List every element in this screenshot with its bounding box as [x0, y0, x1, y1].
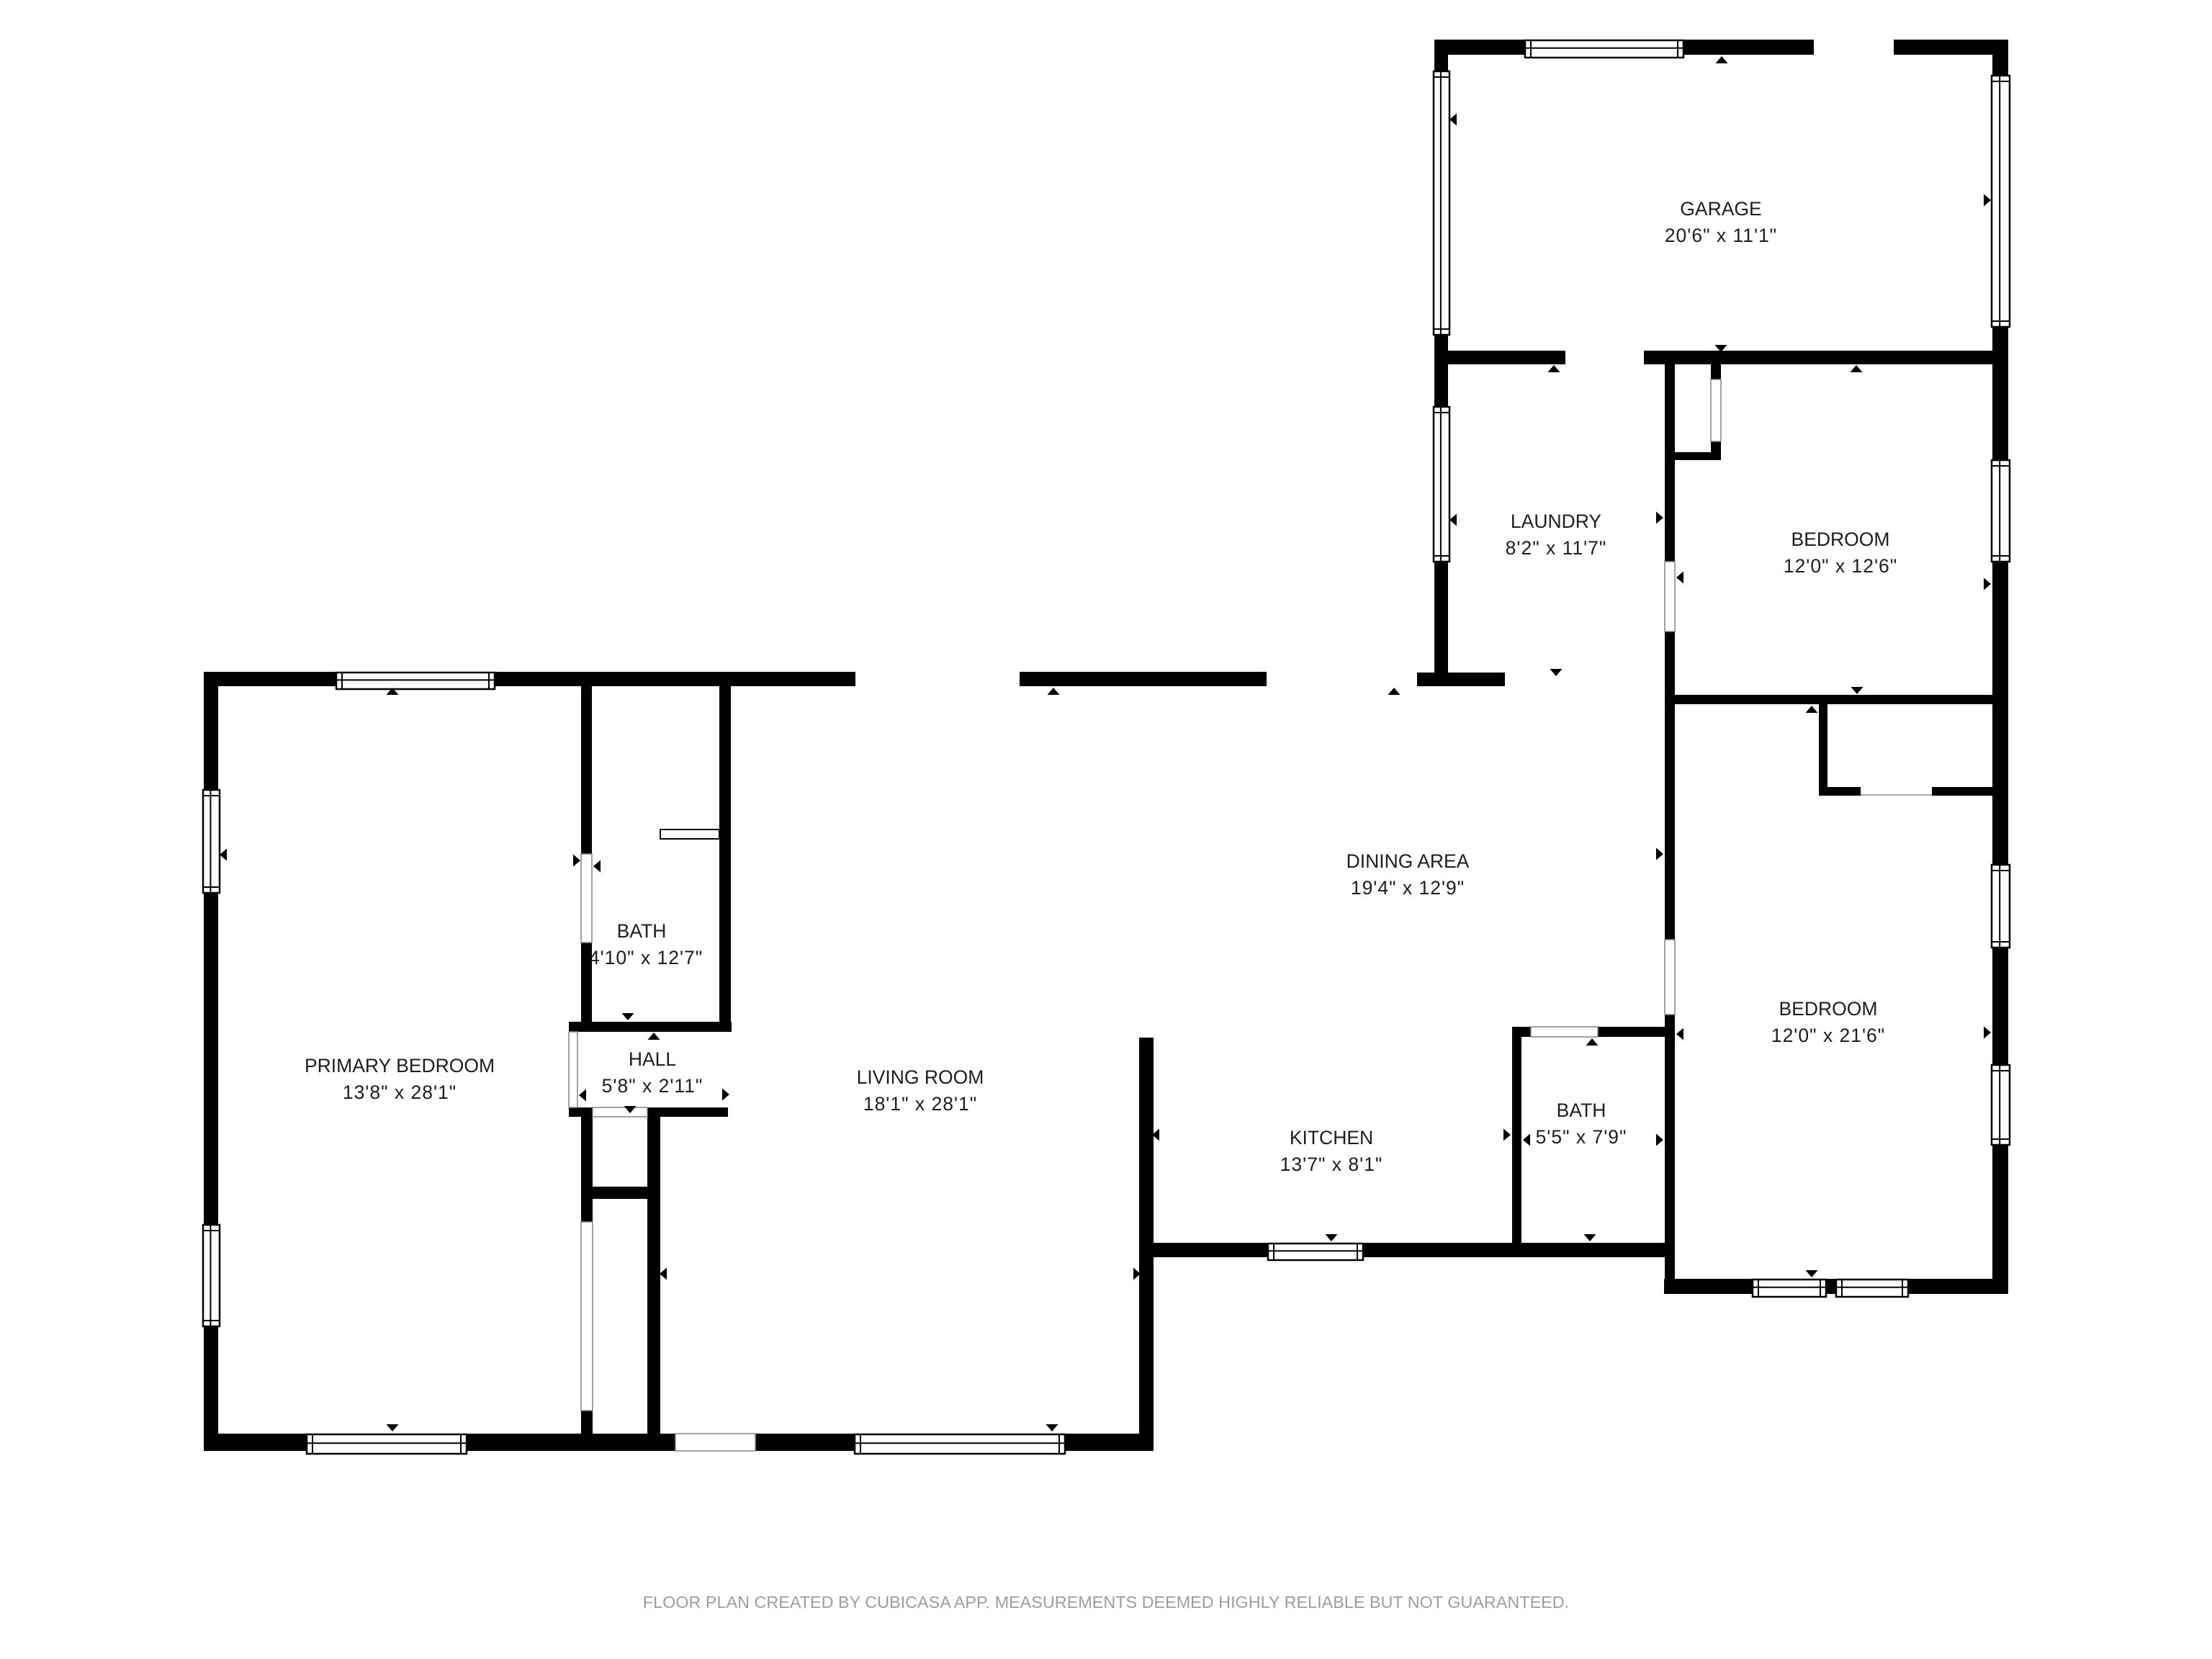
svg-text:BATH: BATH [1557, 1100, 1606, 1121]
svg-text:4'10" x 12'7": 4'10" x 12'7" [589, 947, 703, 968]
svg-text:12'0" x 12'6": 12'0" x 12'6" [1784, 555, 1897, 577]
svg-text:PRIMARY BEDROOM: PRIMARY BEDROOM [305, 1055, 495, 1076]
svg-text:19'4" x 12'9": 19'4" x 12'9" [1351, 877, 1465, 899]
svg-text:13'8" x 28'1": 13'8" x 28'1" [343, 1082, 457, 1103]
svg-text:HALL: HALL [629, 1048, 676, 1070]
svg-text:8'2" x 11'7": 8'2" x 11'7" [1506, 537, 1607, 559]
svg-text:BATH: BATH [617, 920, 667, 942]
svg-text:FLOOR PLAN CREATED BY CUBICASA: FLOOR PLAN CREATED BY CUBICASA APP. MEAS… [643, 1593, 1569, 1611]
svg-text:LIVING ROOM: LIVING ROOM [857, 1066, 984, 1088]
svg-text:13'7" x 8'1": 13'7" x 8'1" [1280, 1154, 1383, 1175]
svg-text:20'6" x 11'1": 20'6" x 11'1" [1665, 225, 1777, 246]
svg-text:DINING AREA: DINING AREA [1346, 850, 1470, 872]
svg-text:BEDROOM: BEDROOM [1791, 529, 1890, 550]
svg-text:18'1" x 28'1": 18'1" x 28'1" [863, 1093, 977, 1115]
svg-text:5'5" x 7'9": 5'5" x 7'9" [1536, 1126, 1627, 1148]
svg-text:5'8" x 2'11": 5'8" x 2'11" [602, 1075, 703, 1097]
svg-text:12'0" x 21'6": 12'0" x 21'6" [1771, 1025, 1885, 1046]
svg-text:LAUNDRY: LAUNDRY [1511, 511, 1601, 532]
svg-text:GARAGE: GARAGE [1680, 198, 1761, 220]
svg-text:BEDROOM: BEDROOM [1779, 998, 1878, 1020]
svg-text:KITCHEN: KITCHEN [1290, 1127, 1373, 1148]
